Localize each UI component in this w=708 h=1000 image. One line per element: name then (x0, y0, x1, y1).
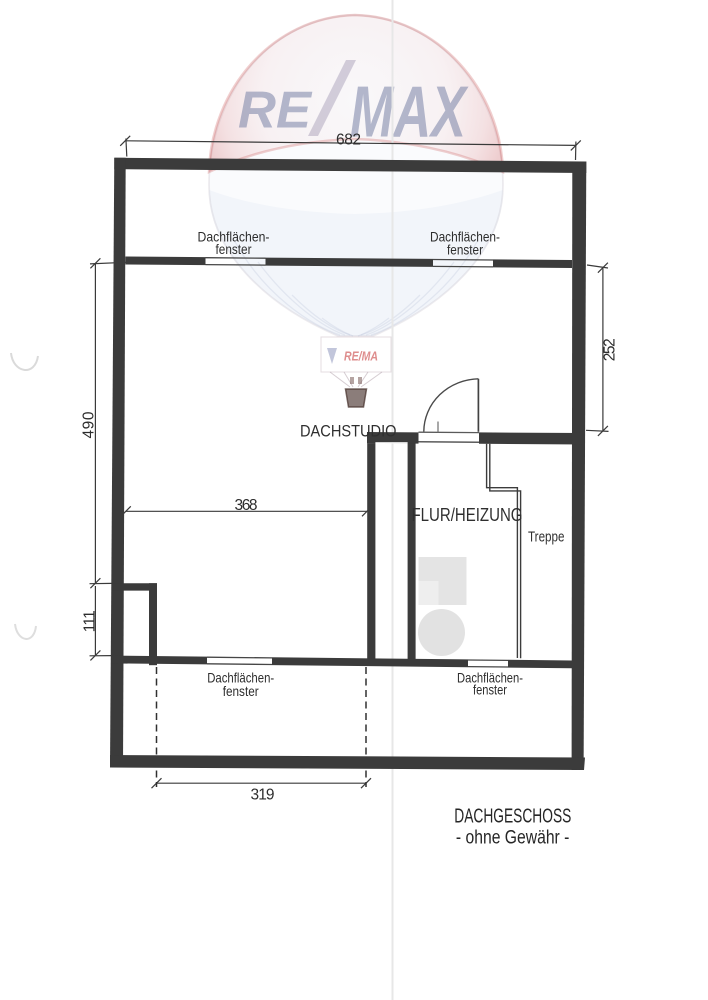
svg-text:368: 368 (235, 497, 258, 514)
svg-text:490: 490 (81, 411, 98, 438)
svg-text:fenster: fenster (447, 241, 483, 257)
svg-text:fenster: fenster (473, 681, 507, 697)
svg-text:319: 319 (251, 787, 275, 804)
svg-text:DACHGESCHOSS: DACHGESCHOSS (454, 805, 571, 827)
svg-text:Treppe: Treppe (528, 529, 565, 545)
svg-text:111: 111 (81, 610, 98, 632)
svg-text:fenster: fenster (216, 241, 252, 257)
svg-text:fenster: fenster (223, 683, 259, 699)
svg-text:RE/MA: RE/MA (344, 350, 378, 364)
svg-text:MAX: MAX (350, 73, 469, 153)
svg-text:- ohne Gewähr -: - ohne Gewähr - (456, 827, 570, 848)
svg-text:252: 252 (602, 338, 619, 361)
svg-text:682: 682 (336, 132, 361, 149)
svg-text:FLUR/HEIZUNG: FLUR/HEIZUNG (412, 504, 523, 525)
svg-text:RE: RE (238, 82, 312, 140)
svg-text:DACHSTUDIO: DACHSTUDIO (300, 422, 397, 440)
